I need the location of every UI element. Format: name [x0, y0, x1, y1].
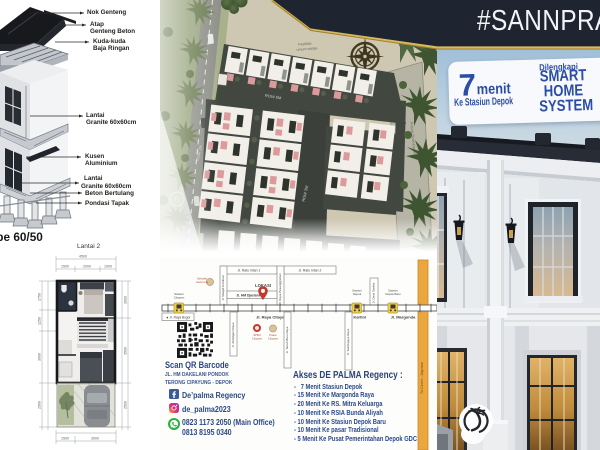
svg-text:Depok Baru: Depok Baru	[385, 292, 401, 296]
svg-text:3500: 3500	[124, 347, 128, 355]
svg-text:2000: 2000	[83, 265, 91, 269]
svg-text:3000: 3000	[124, 296, 128, 304]
svg-text:2500: 2500	[124, 401, 128, 409]
svg-text:Tol Cinere - Jagorawi: Tol Cinere - Jagorawi	[420, 362, 424, 394]
svg-text:Jl. Ratu Intan 2: Jl. Ratu Intan 2	[299, 269, 322, 273]
svg-text:Avicennia: Avicennia	[196, 280, 209, 284]
svg-text:Citayam: Citayam	[174, 296, 185, 300]
svg-text:Depok: Depok	[353, 292, 362, 296]
svg-text:Jl. Ratu Intan 1: Jl. Ratu Intan 1	[238, 269, 261, 273]
svg-text:Jl. Masjid Al-Ittihad: Jl. Masjid Al-Ittihad	[221, 275, 225, 300]
svg-text:Jl. Abdulgani Raya: Jl. Abdulgani Raya	[231, 322, 235, 347]
svg-text:Jl. Raya Citayam: Jl. Raya Citayam	[256, 315, 288, 320]
svg-text:2500: 2500	[38, 401, 42, 409]
svg-text:◄ Jl. Raya Bogor: ◄ Jl. Raya Bogor	[166, 315, 192, 319]
svg-text:Citayam: Citayam	[268, 336, 279, 340]
svg-text:1500: 1500	[61, 437, 69, 441]
svg-text:Jl. Sukmajaya Raya: Jl. Sukmajaya Raya	[346, 328, 350, 355]
svg-text:Jl. Margonda: Jl. Margonda	[391, 315, 416, 320]
svg-text:Jl. Tanah Baru Raya: Jl. Tanah Baru Raya	[285, 326, 289, 353]
svg-text:3000: 3000	[91, 437, 99, 441]
svg-text:Citayam: Citayam	[252, 336, 263, 340]
svg-text:1250: 1250	[38, 317, 42, 325]
svg-text:Jl. HM Djaelani: Jl. HM Djaelani	[236, 293, 259, 297]
svg-text:1000: 1000	[104, 265, 112, 269]
svg-text:4500: 4500	[79, 255, 87, 259]
svg-text:3000: 3000	[38, 353, 42, 361]
svg-text:Jl. Dewi Sartika: Jl. Dewi Sartika	[372, 282, 376, 303]
svg-text:1500: 1500	[61, 265, 69, 269]
svg-text:1750: 1750	[38, 293, 42, 301]
svg-text:Jl. Raya Pesanggrahan: Jl. Raya Pesanggrahan	[278, 273, 282, 305]
